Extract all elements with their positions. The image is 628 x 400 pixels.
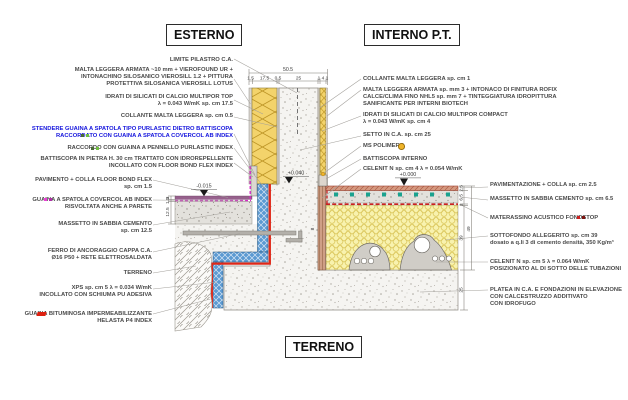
label-collante-esterno: COLLANTE MALTA LEGGERA sp. cm 0.5 (121, 113, 233, 120)
int-pavement (326, 186, 458, 191)
dim-int-screed: 6.5 (459, 194, 465, 201)
marker-raccordato-covercol (81, 134, 89, 137)
exterior-ground (175, 166, 257, 224)
ext-screed (175, 202, 252, 225)
dim-ext-insulation: 17.5 (260, 75, 270, 81)
label-setto-ca: SETTO IN C.A. sp. cm 25 (363, 132, 431, 139)
label-malta-esterna: MALTA LEGGERA ARMATA ~10 mm + VIEROFOUND… (75, 67, 233, 88)
label-limite-pilastro: LIMITE PILASTRO C.A. (170, 57, 233, 64)
label-xps: XPS sp. cm 5 λ = 0.034 W/mKINCOLLATO CON… (39, 285, 152, 299)
dim-slab: 25 (459, 287, 465, 293)
dim-top-total: 50.5 (283, 67, 293, 73)
label-collante-interno: COLLANTE MALTA LEGGERA sp. cm 1 (363, 76, 470, 83)
dim-wall-base: 8 (310, 227, 316, 230)
title-terreno: TERRENO (285, 336, 362, 358)
label-massetto-interno: MASSETTO IN SABBIA CEMENTO sp. cm 6.5 (490, 196, 613, 203)
level-int-floor: +0.000 (400, 172, 417, 178)
level-ext-pavement: -0.015 (196, 184, 211, 190)
label-battiscopa-pietra: BATTISCOPA IN PIETRA H. 30 cm TRATTATO C… (41, 156, 234, 170)
xps-lower (213, 262, 223, 308)
label-stendere-guaina: STENDERE GUAINA A SPATOLA TIPO PURLASTIC… (32, 126, 233, 140)
dim-ext-pavement: 1.5 (165, 197, 171, 204)
xps-horizontal (213, 252, 268, 262)
level-wall-base: +0.040 (288, 171, 305, 177)
construction-detail-drawing: 50.5 1.5 17.5 0.5 25 1 4 1 3 1.5 12.5 2.… (0, 0, 628, 400)
label-sottofondo: SOTTOFONDO ALLEGERITO sp. cm 39dosato a … (490, 233, 614, 247)
marker-raccordo-pennello (91, 147, 99, 150)
label-malta-interna: MALTA LEGGERA ARMATA sp. mm 3 + INTONACO… (363, 87, 557, 108)
label-terreno: TERRENO (124, 270, 152, 277)
dim-ext-render: 1.5 (247, 75, 254, 81)
ext-adhesive-layer (277, 88, 279, 184)
dim-ext-screed: 12.5 (165, 207, 171, 217)
xps-upper (258, 184, 269, 252)
dim-wall-core: 25 (296, 75, 302, 81)
int-insulation-multipor-compact (320, 88, 326, 186)
ext-stone-skirting (251, 166, 257, 196)
label-ferro-ancoraggio: FERRO DI ANCORAGGIO CAPPA C.A.Ø16 P50 + … (48, 248, 152, 262)
label-battiscopa-interno: BATTISCOPA INTERNO (363, 156, 427, 163)
label-platea: PLATEA IN C.A. E FONDAZIONI IN ELEVAZION… (490, 287, 622, 308)
label-celenit-4: CELENIT N sp. cm 4 λ = 0.054 W/mK (363, 166, 462, 173)
int-screed (326, 191, 458, 204)
dim-fonostop: 1 (459, 203, 465, 206)
label-massetto-esterno: MASSETTO IN SABBIA CEMENTOsp. cm 12.5 (58, 221, 152, 235)
marker-materassino (577, 216, 585, 219)
celenit-perimeter-strip (318, 186, 326, 270)
label-celenit-5: CELENIT N sp. cm 5 λ = 0.064 W/mKPOSIZIO… (490, 259, 621, 273)
marker-ms-polimero (398, 143, 405, 150)
dim-int-pavement: 2.5 (459, 185, 465, 192)
title-interno: INTERNO P.T. (364, 24, 460, 46)
label-pavimento-esterno: PAVIMENTO + COLLA FLOOR BOND FLEXsp. cm … (35, 177, 152, 191)
ext-pavement (175, 196, 252, 199)
title-esterno: ESTERNO (166, 24, 242, 46)
marker-guaina-bituminosa (36, 312, 46, 316)
int-skirting (319, 175, 327, 186)
label-pavimentazione: PAVIMENTAZIONE + COLLA sp. cm 2.5 (490, 182, 597, 189)
dim-subfloor: 39 (459, 235, 465, 241)
label-idrati-multipor-top: IDRATI DI SILICATI DI CALCIO MULTIPOR TO… (105, 94, 233, 108)
dim-ext-adhesive: 0.5 (275, 75, 282, 81)
soil-hatch (175, 242, 212, 331)
marker-guaina-covercol (44, 198, 52, 201)
label-idrati-multipor-compact: IDRATI DI SILICATI DI CALCIO MULTIPOR CO… (363, 112, 508, 126)
dim-floor-total: 49 (466, 226, 472, 232)
dim-int-finishes: 1 4 1 (318, 75, 329, 81)
